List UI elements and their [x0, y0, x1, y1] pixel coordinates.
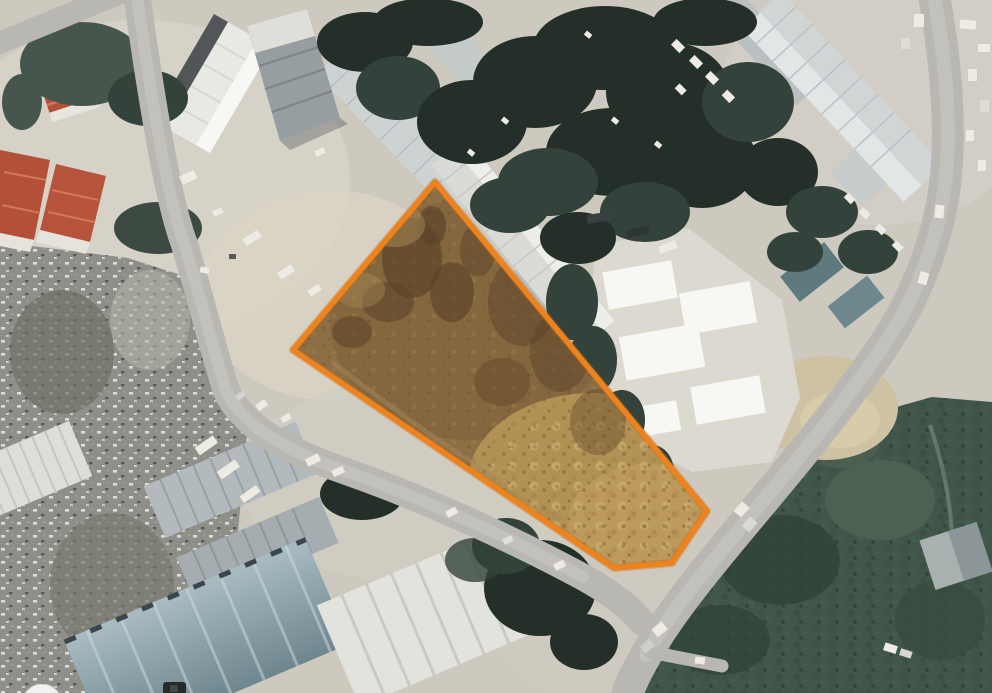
watermark-fragment-tile — [163, 682, 186, 693]
aerial-photo — [0, 0, 992, 693]
satellite-map-view[interactable] — [0, 0, 992, 693]
